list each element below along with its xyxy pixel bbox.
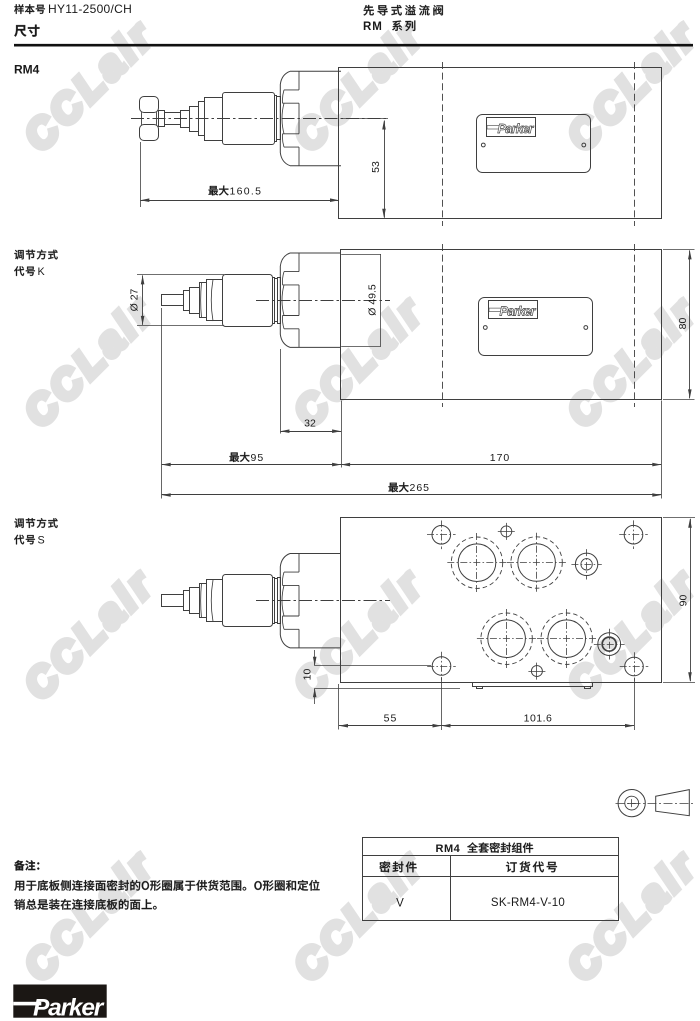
- svg-text:160.5: 160.5: [230, 186, 263, 198]
- svg-text:HY11-2500/CH: HY11-2500/CH: [48, 2, 132, 16]
- svg-text:265: 265: [410, 482, 431, 494]
- svg-text:32: 32: [304, 418, 316, 430]
- svg-text:K: K: [38, 266, 46, 278]
- svg-text:95: 95: [251, 452, 265, 464]
- svg-text:101.6: 101.6: [524, 713, 553, 725]
- svg-text:53: 53: [370, 161, 382, 173]
- svg-text:RM4: RM4: [436, 843, 461, 855]
- svg-text:Parker: Parker: [33, 995, 105, 1021]
- svg-text:SK-RM4-V-10: SK-RM4-V-10: [491, 897, 565, 909]
- svg-text:Ø 27: Ø 27: [129, 288, 141, 311]
- svg-text:Parker: Parker: [498, 121, 535, 136]
- svg-text:90: 90: [678, 595, 690, 607]
- svg-text:S: S: [38, 535, 45, 547]
- svg-text:80: 80: [677, 318, 689, 330]
- svg-text:10: 10: [302, 669, 314, 681]
- svg-text:V: V: [396, 898, 404, 910]
- svg-text:55: 55: [384, 713, 398, 725]
- svg-text:Parker: Parker: [500, 304, 537, 319]
- svg-text:RM: RM: [363, 21, 383, 33]
- svg-text:RM4: RM4: [14, 63, 40, 77]
- svg-text:Ø 49.5: Ø 49.5: [367, 284, 379, 316]
- svg-text:170: 170: [490, 452, 511, 464]
